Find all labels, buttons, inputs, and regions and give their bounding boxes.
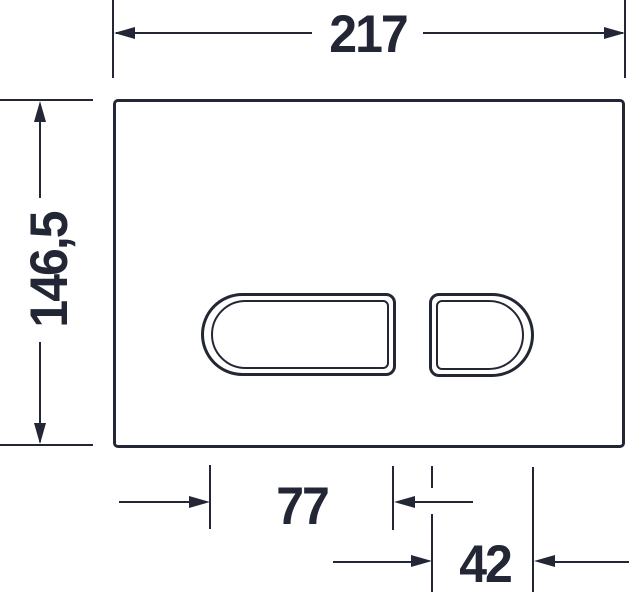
dim-small-button-extension-line-left-lower [431,514,433,592]
dim-large-button-line-right [415,501,473,503]
dim-small-button-label: 42 [459,538,511,591]
dim-height-arrow-down [34,423,46,444]
plate-outline [113,99,625,448]
dim-height-label: 146,5 [23,212,76,327]
dim-small-button-line-right [555,561,629,563]
dim-width-arrow-left [114,27,135,39]
dim-height-arrow-up [34,101,46,122]
dim-height-extension-line-bottom [0,444,93,446]
dim-small-button-extension-line-right [532,467,534,592]
large-flush-button-inner-outline [211,300,389,369]
dim-large-button-arrow-right [394,496,415,508]
dim-large-button-label: 77 [276,480,328,533]
dim-small-button-arrow-left [411,555,432,567]
dim-width-line-right-segment [423,32,623,34]
dim-small-button-line-left [333,561,411,563]
dim-large-button-extension-line-left [209,465,211,529]
dim-width-line-left-segment [116,32,312,34]
technical-drawing-canvas: 217 146,5 77 42 [0,0,629,592]
dim-large-button-arrow-left [189,496,210,508]
dim-small-button-extension-line-left-upper [431,466,433,488]
small-flush-button-inner-outline [436,300,524,370]
dim-width-extension-line-left [112,0,114,78]
dim-width-label: 217 [329,8,406,61]
dim-small-button-arrow-right [534,555,555,567]
dim-width-extension-line-right [624,0,626,78]
dim-large-button-line-left [119,501,190,503]
dim-height-extension-line-top [0,99,93,101]
small-flush-button [429,293,534,377]
large-flush-button [201,293,396,376]
dim-width-arrow-right [604,27,625,39]
